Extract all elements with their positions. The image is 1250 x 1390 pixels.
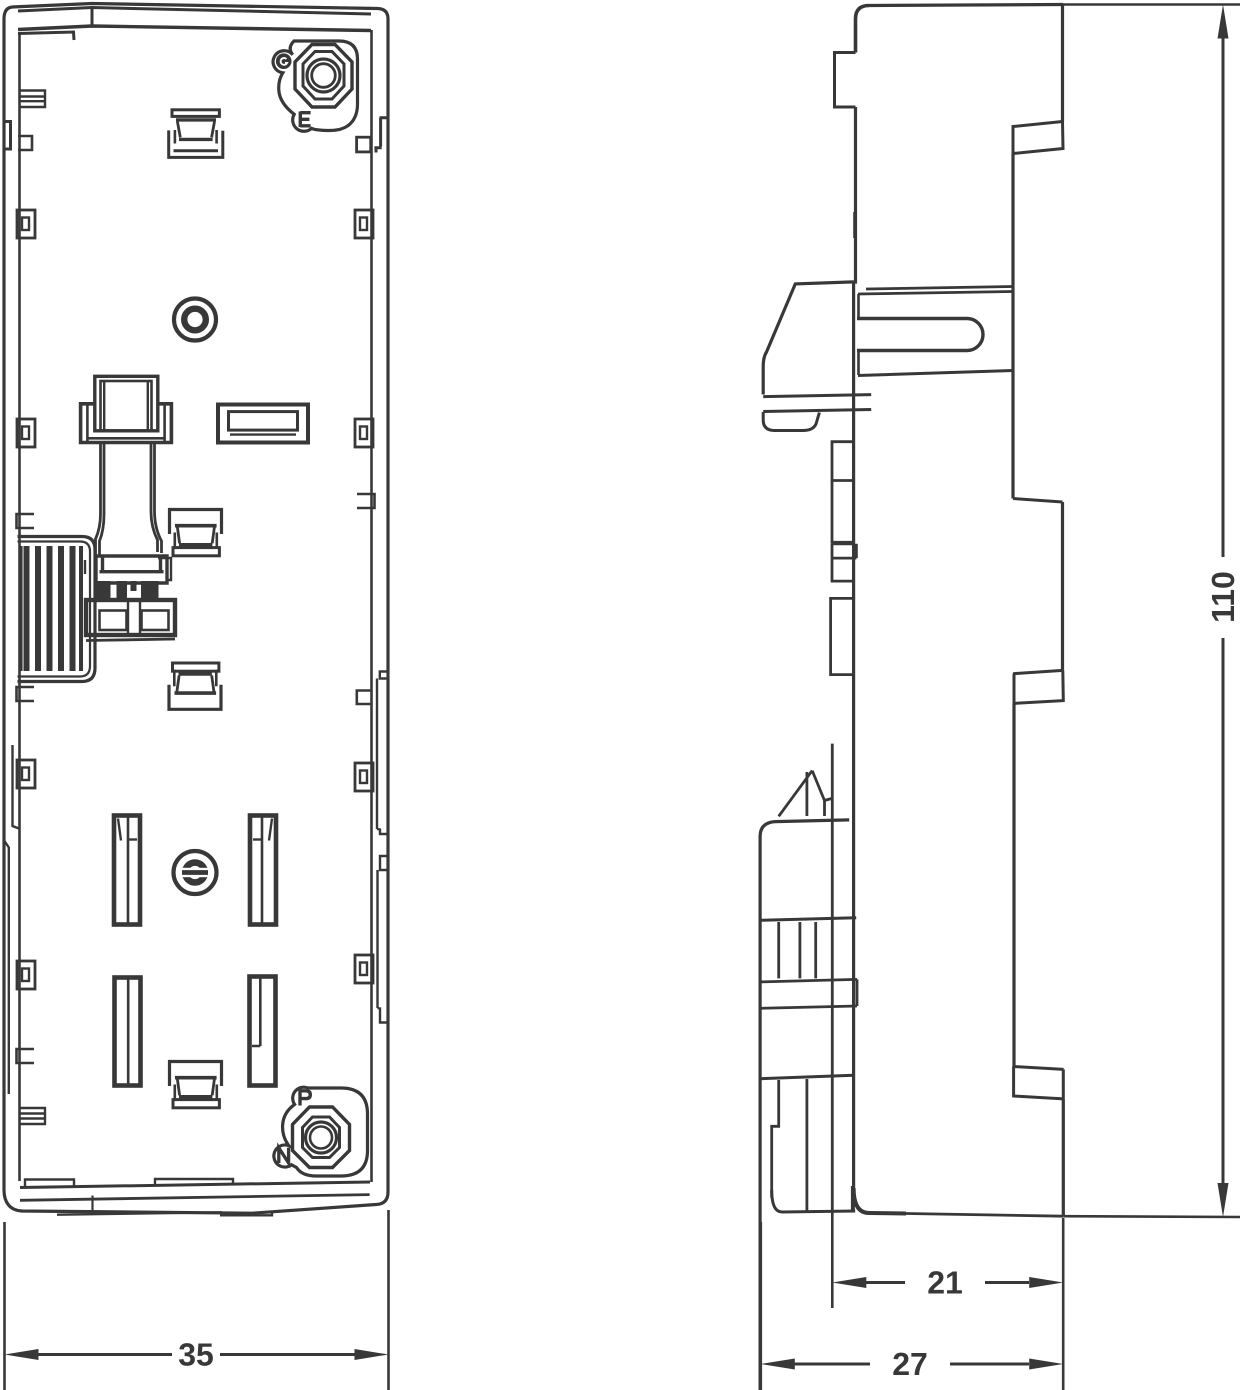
svg-text:21: 21 [927, 1265, 963, 1301]
svg-text:110: 110 [1205, 571, 1241, 623]
svg-text:27: 27 [892, 1346, 928, 1382]
svg-text:35: 35 [178, 1337, 214, 1373]
